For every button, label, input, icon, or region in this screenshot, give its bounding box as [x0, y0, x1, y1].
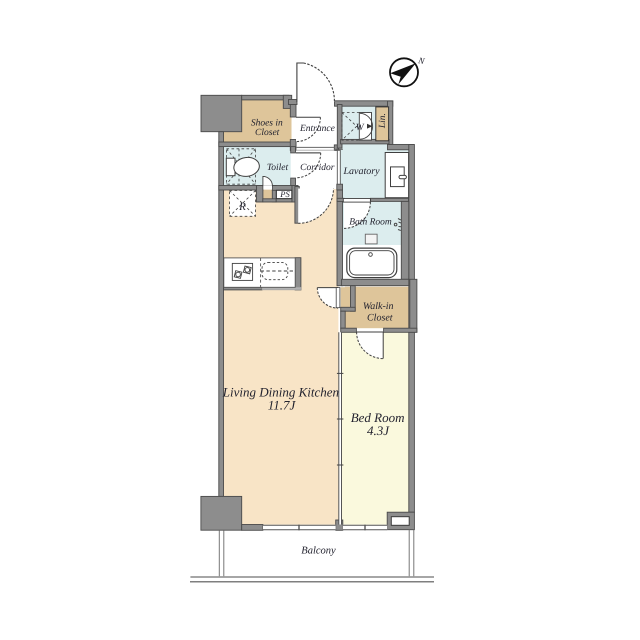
svg-text:PS: PS [279, 189, 290, 199]
svg-text:Corridor: Corridor [300, 163, 335, 173]
svg-text:Lin.: Lin. [378, 113, 388, 129]
svg-text:Entrance: Entrance [299, 124, 335, 134]
svg-text:4.3J: 4.3J [367, 423, 390, 438]
svg-text:R: R [238, 201, 246, 213]
svg-text:Bath Room: Bath Room [349, 218, 392, 228]
svg-text:Lavatory: Lavatory [342, 166, 380, 177]
svg-text:Walk-in: Walk-in [363, 301, 394, 312]
svg-text:11.7J: 11.7J [268, 398, 297, 413]
svg-text:Toilet: Toilet [267, 163, 289, 173]
svg-text:W: W [356, 123, 365, 133]
svg-text:Closet: Closet [367, 312, 393, 323]
svg-text:Shoes in: Shoes in [251, 119, 283, 129]
svg-text:Closet: Closet [255, 128, 280, 138]
svg-text:Balcony: Balcony [301, 546, 336, 557]
